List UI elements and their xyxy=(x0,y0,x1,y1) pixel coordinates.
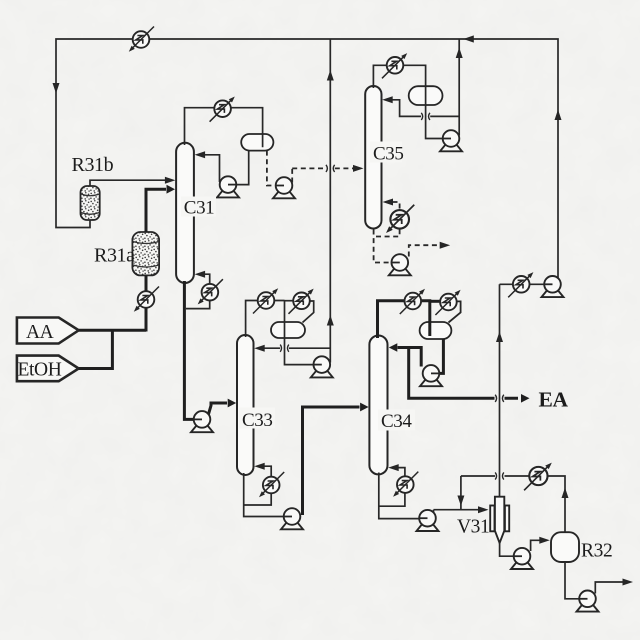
svg-text:EtOH: EtOH xyxy=(18,360,62,381)
svg-text:C34: C34 xyxy=(381,411,412,432)
svg-text:EA: EA xyxy=(539,388,569,412)
svg-text:C35: C35 xyxy=(373,144,403,165)
svg-text:V31: V31 xyxy=(457,517,489,538)
svg-text:R32: R32 xyxy=(581,541,612,562)
svg-text:R31b: R31b xyxy=(72,154,114,176)
svg-text:C33: C33 xyxy=(242,410,272,431)
svg-text:C31: C31 xyxy=(184,197,214,218)
svg-text:R31a: R31a xyxy=(94,245,135,267)
svg-text:AA: AA xyxy=(26,322,54,343)
